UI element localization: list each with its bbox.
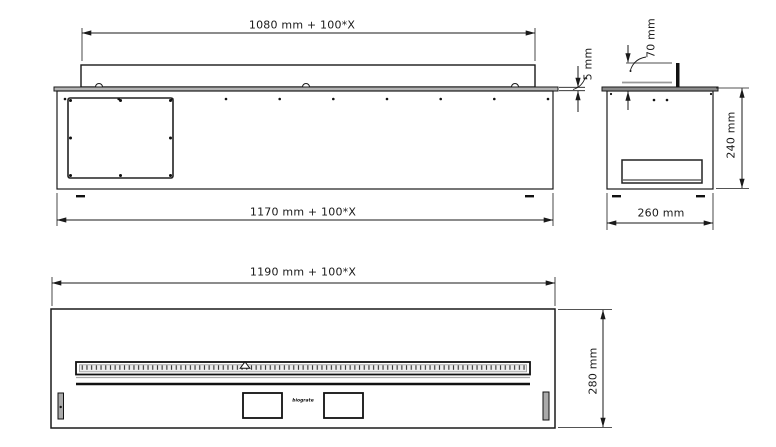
lid-hinge-bump xyxy=(96,84,103,88)
side-view xyxy=(54,28,586,226)
section-foot xyxy=(696,195,705,197)
lid-hinge-bump xyxy=(303,84,310,88)
front-cutout-right xyxy=(324,393,363,418)
dim-label-plate-thickness: 5 mm xyxy=(582,48,595,81)
dim-front-length xyxy=(52,277,555,306)
front-view xyxy=(51,277,612,428)
side-foot xyxy=(76,195,85,197)
section-control-bar xyxy=(676,63,680,88)
dim-label-body-length: 1170 mm + 100*X xyxy=(250,206,356,219)
dim-label-lid-height: 70 mm xyxy=(645,18,658,58)
section-top-plate xyxy=(602,87,718,91)
dim-label-body-depth: 260 mm xyxy=(637,207,684,220)
dim-front-height xyxy=(558,310,612,428)
brand-logo: biograte xyxy=(292,399,314,404)
side-foot xyxy=(525,195,534,197)
front-left-strip-screw xyxy=(60,406,62,408)
side-body xyxy=(57,91,553,189)
dim-label-front-length: 1190 mm + 100*X xyxy=(250,266,356,279)
dim-label-lid-length: 1080 mm + 100*X xyxy=(249,19,355,32)
front-right-strip xyxy=(543,392,549,420)
front-cutout-left xyxy=(243,393,282,418)
dim-label-front-height: 280 mm xyxy=(587,347,600,394)
lid-hinge-bump xyxy=(512,84,519,88)
technical-drawing: 1080 mm + 100*X 1170 mm + 100*X 5 mm 70 … xyxy=(0,0,776,447)
dim-label-body-height: 240 mm xyxy=(725,111,738,158)
burner-strip-grate xyxy=(80,365,527,372)
dim-lid-length xyxy=(82,28,535,61)
drawing-linework xyxy=(0,0,776,447)
section-foot xyxy=(612,195,621,197)
